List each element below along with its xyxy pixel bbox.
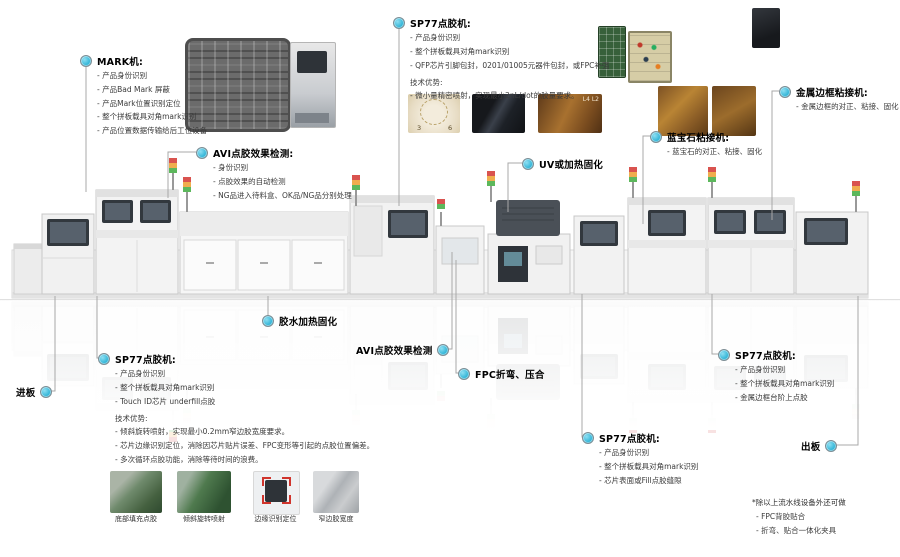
callout-title: SP77点胶机: [735, 348, 796, 362]
callout-item: 金属边框台阶上点胶 [735, 393, 834, 403]
callout-metal-frame-bonder: 金属边框粘接机: 金属边框的对正、粘接、固化 [779, 85, 899, 116]
callout-item: 身份识别 [213, 163, 352, 173]
callout-dot [779, 86, 791, 98]
callout-dot [718, 349, 730, 361]
callout-item: 微小量精密喷射，实现最小2nL/dot的胶量要求。 [410, 91, 609, 101]
callout-dot [522, 158, 534, 170]
photo-mark: 3 [417, 124, 421, 132]
callout-item: 产品位置数据传输给后工位设备 [97, 126, 207, 136]
callout-dot [437, 344, 449, 356]
callout-sp77-mid: SP77点胶机: 产品身份识别 整个拼板载具对角mark识别 芯片表面或Fill… [582, 431, 698, 489]
callout-title: FPC折弯、压合 [475, 367, 545, 381]
underfill-dispense-photo [110, 471, 162, 513]
machine-screen [297, 51, 327, 73]
machine-base [295, 113, 329, 123]
callout-dot [825, 440, 837, 452]
callout-item: Touch ID芯片 underfill点胶 [115, 397, 388, 407]
operator-panel-photo [628, 31, 672, 83]
gallery-caption: 倾斜旋转喷射 [167, 514, 241, 524]
callout-glue-heat-cure: 胶水加热固化 [262, 314, 337, 328]
callout-board-in: 进板 [16, 385, 52, 399]
callout-avi-bottom: AVI点胶效果检测 [356, 343, 449, 357]
callout-item: 产品身份识别 [599, 448, 698, 458]
corner-mark [262, 495, 271, 504]
machine-row [0, 158, 900, 300]
callout-title: AVI点胶效果检测 [356, 343, 432, 357]
fpc-macro-photo [658, 86, 708, 136]
callout-item: 芯片表面或Fill点胶缝隙 [599, 476, 698, 486]
callout-dot [262, 315, 274, 327]
tech-advantage-title: 技术优势: [115, 413, 388, 424]
callout-sp77-top: SP77点胶机: 产品身份识别 整个拼板载具对角mark识别 QFP芯片引脚包封… [393, 16, 609, 105]
callout-title: SP77点胶机: [115, 352, 176, 366]
callout-item: 产品身份识别 [97, 71, 207, 81]
callout-dot [650, 131, 662, 143]
callout-title: AVI点胶效果检测: [213, 146, 293, 160]
callout-dot [196, 147, 208, 159]
callout-sp77-right: SP77点胶机: 产品身份识别 整个拼板载具对角mark识别 金属边框台阶上点胶 [718, 348, 834, 406]
callout-item: 整个拼板载具对角mark识别 [410, 47, 609, 57]
callout-item: 产品身份识别 [410, 33, 609, 43]
callout-title: 胶水加热固化 [279, 314, 337, 328]
fixture-photo [752, 8, 780, 48]
corner-mark [282, 495, 291, 504]
callout-title: 进板 [16, 385, 35, 399]
corner-mark [282, 477, 291, 486]
callout-item: 芯片边缘识别定位，消除因芯片贴片误差、FPC变形等引起的点胶位置偏差。 [115, 441, 388, 451]
callout-item: 多次循环点胶功能，消除等待时间的浪费。 [115, 455, 388, 465]
callout-board-out: 出板 [801, 439, 837, 453]
callout-item: 整个拼板载具对角mark识别 [97, 112, 207, 122]
callout-title: UV或加热固化 [539, 157, 603, 171]
footnote-item: FPC背胶贴合 [756, 511, 900, 522]
callout-title: 出板 [801, 439, 820, 453]
callout-item: 整个拼板载具对角mark识别 [735, 379, 834, 389]
gallery-caption: 窄边胶宽度 [303, 514, 369, 524]
edge-recognition-photo [253, 471, 300, 515]
corner-mark [262, 477, 271, 486]
callout-item: 整个拼板载具对角mark识别 [599, 462, 698, 472]
callout-sapphire-bonder: 蓝宝石粘接机: 蓝宝石的对正、粘接、固化 [650, 130, 762, 161]
callout-dot [40, 386, 52, 398]
tech-advantage-title: 技术优势: [410, 77, 609, 88]
callout-avi-top: AVI点胶效果检测: 身份识别 点胶效果的自动检测 NG品进入待料盒、OK品/N… [196, 146, 352, 204]
callout-dot [582, 432, 594, 444]
callout-item: 金属边框的对正、粘接、固化 [796, 102, 899, 112]
callout-mark-machine: MARK机: 产品身份识别 产品Bad Mark 屏蔽 产品Mark位置识别定位… [80, 54, 207, 140]
gallery-caption: 边缘识别定位 [243, 514, 308, 524]
callout-title: SP77点胶机: [599, 431, 660, 445]
callout-dot [393, 17, 405, 29]
callout-item: 整个拼板载具对角mark识别 [115, 383, 388, 393]
callout-dot [80, 55, 92, 67]
callout-sp77-left: SP77点胶机: 产品身份识别 整个拼板载具对角mark识别 Touch ID芯… [98, 352, 388, 469]
callout-item: QFP芯片引脚包封，0201/01005元器件包封，或FPC补强 [410, 61, 609, 71]
mark-machine-photo [290, 42, 336, 128]
footnote-title: *除以上流水线设备外还可做 [752, 497, 900, 508]
tilt-jet-photo [177, 471, 231, 513]
gallery-caption: 底部填充点胶 [100, 514, 172, 524]
callout-item: 产品身份识别 [115, 369, 388, 379]
callout-dot [458, 368, 470, 380]
callout-item: 点胶效果的自动检测 [213, 177, 352, 187]
production-line-infographic: 3 6 L4 L2 MARK机: 产品身份识别 产品Bad Mark 屏蔽 产品… [0, 0, 900, 557]
callout-item: 倾斜旋转喷射，实现最小0.2mm窄边胶宽度要求。 [115, 427, 388, 437]
callout-item: 产品Mark位置识别定位 [97, 99, 207, 109]
callout-title: MARK机: [97, 54, 143, 68]
narrow-glue-width-photo [313, 471, 359, 513]
callout-dot [98, 353, 110, 365]
callout-item: 产品身份识别 [735, 365, 834, 375]
footnote-item: 折弯、贴合一体化夹具 [756, 525, 900, 536]
callout-item: NG品进入待料盒、OK品/NG品分别处理 [213, 191, 352, 201]
photo-mark: 6 [448, 124, 452, 132]
frame-macro-photo [712, 86, 756, 136]
footnote: *除以上流水线设备外还可做 FPC背胶贴合 折弯、贴合一体化夹具 [752, 497, 900, 539]
callout-uv-cure: UV或加热固化 [522, 157, 603, 171]
callout-fpc-bend-press: FPC折弯、压合 [458, 367, 545, 381]
callout-item: 蓝宝石的对正、粘接、固化 [667, 147, 762, 157]
callout-title: 蓝宝石粘接机: [667, 130, 729, 144]
callout-title: 金属边框粘接机: [796, 85, 868, 99]
callout-item: 产品Bad Mark 屏蔽 [97, 85, 207, 95]
callout-title: SP77点胶机: [410, 16, 471, 30]
